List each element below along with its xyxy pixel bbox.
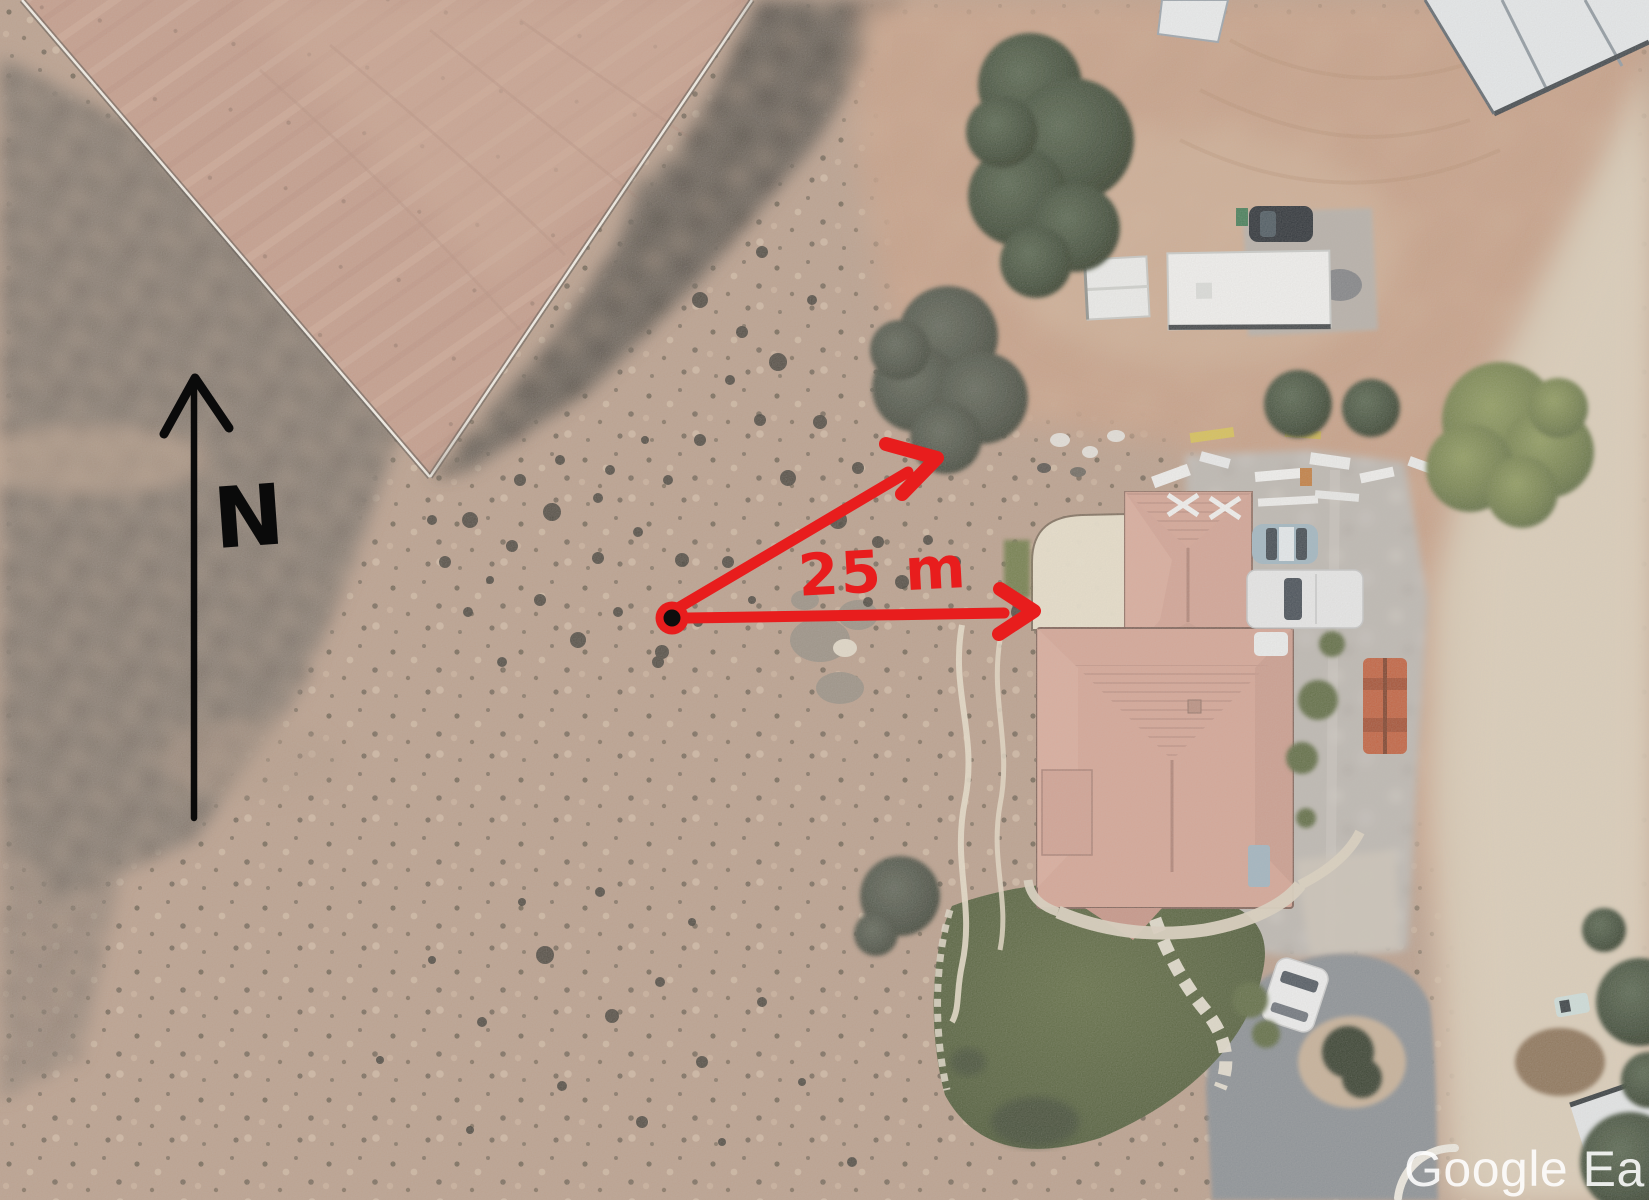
satellite-screenshot: N 25 m Google Ea [0,0,1649,1200]
google-earth-watermark: Google Ea [1404,1141,1645,1197]
origin-dot-center [664,610,681,627]
distance-label: 25 m [796,533,969,610]
arrow-east-shaft [688,613,1004,618]
north-label: N [210,465,287,568]
